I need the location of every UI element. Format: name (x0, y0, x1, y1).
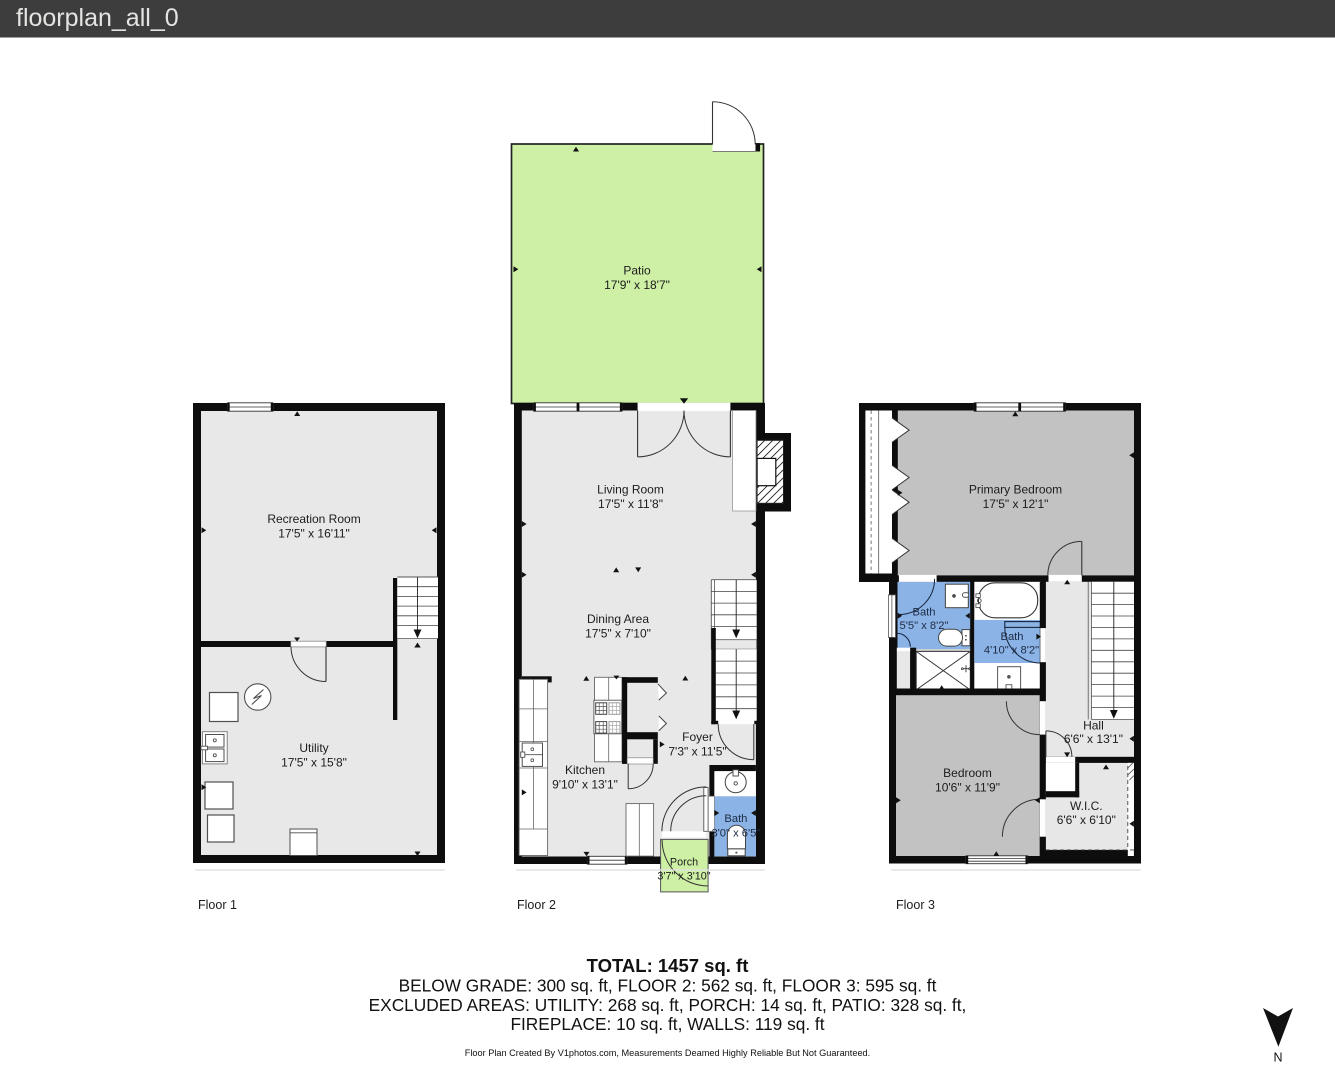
svg-text:Floor 3: Floor 3 (896, 898, 935, 912)
svg-text:17'5" x 16'11": 17'5" x 16'11" (278, 527, 350, 541)
svg-text:W.I.C.: W.I.C. (1070, 799, 1103, 813)
svg-text:FIREPLACE: 10 sq. ft, WALLS: 1: FIREPLACE: 10 sq. ft, WALLS: 119 sq. ft (510, 1014, 824, 1034)
svg-text:N: N (1273, 1051, 1282, 1065)
svg-text:6'6" x 6'10": 6'6" x 6'10" (1057, 813, 1116, 827)
svg-text:Living Room: Living Room (597, 483, 664, 497)
svg-text:17'5" x 7'10": 17'5" x 7'10" (585, 627, 651, 641)
svg-text:10'6" x 11'9": 10'6" x 11'9" (935, 781, 1000, 795)
svg-text:Bath: Bath (724, 813, 747, 825)
svg-text:Recreation Room: Recreation Room (267, 512, 360, 526)
svg-text:7'3" x 11'5": 7'3" x 11'5" (668, 745, 726, 759)
svg-text:17'5" x 15'8": 17'5" x 15'8" (281, 756, 347, 770)
svg-text:Bath: Bath (912, 607, 935, 619)
svg-text:Dining Area: Dining Area (587, 612, 649, 626)
svg-text:Hall: Hall (1083, 719, 1104, 733)
svg-text:EXCLUDED AREAS: UTILITY: 268 s: EXCLUDED AREAS: UTILITY: 268 sq. ft, POR… (369, 995, 967, 1015)
svg-text:Primary Bedroom: Primary Bedroom (969, 483, 1062, 497)
svg-text:17'5" x 12'1": 17'5" x 12'1" (983, 497, 1049, 511)
svg-text:Foyer: Foyer (682, 730, 713, 744)
svg-text:Floor Plan Created By V1photos: Floor Plan Created By V1photos.com, Meas… (465, 1048, 870, 1058)
svg-text:Kitchen: Kitchen (565, 763, 605, 777)
svg-text:5'5" x 8'2": 5'5" x 8'2" (900, 620, 949, 632)
svg-text:4'10" x 8'2": 4'10" x 8'2" (984, 644, 1039, 656)
svg-text:Floor 2: Floor 2 (517, 898, 556, 912)
svg-text:17'9" x 18'7": 17'9" x 18'7" (604, 278, 670, 292)
svg-text:BELOW GRADE: 300 sq. ft, FLOOR: BELOW GRADE: 300 sq. ft, FLOOR 2: 562 sq… (399, 976, 937, 996)
svg-text:TOTAL: 1457 sq. ft: TOTAL: 1457 sq. ft (587, 955, 749, 976)
svg-text:9'10" x 13'1": 9'10" x 13'1" (552, 778, 618, 792)
svg-text:Bath: Bath (1000, 631, 1023, 643)
svg-text:Floor 1: Floor 1 (198, 898, 237, 912)
svg-text:6'6" x 13'1": 6'6" x 13'1" (1064, 732, 1123, 746)
svg-text:Utility: Utility (299, 741, 328, 755)
svg-text:Bedroom: Bedroom (943, 766, 992, 780)
svg-text:Porch: Porch (670, 857, 698, 869)
svg-text:17'5" x 11'8": 17'5" x 11'8" (598, 497, 663, 511)
svg-text:3'7" x 3'10": 3'7" x 3'10" (657, 871, 710, 883)
svg-text:3'0" x 6'5": 3'0" x 6'5" (711, 828, 760, 840)
svg-text:floorplan_all_0: floorplan_all_0 (16, 4, 179, 32)
svg-text:Patio: Patio (623, 264, 651, 278)
